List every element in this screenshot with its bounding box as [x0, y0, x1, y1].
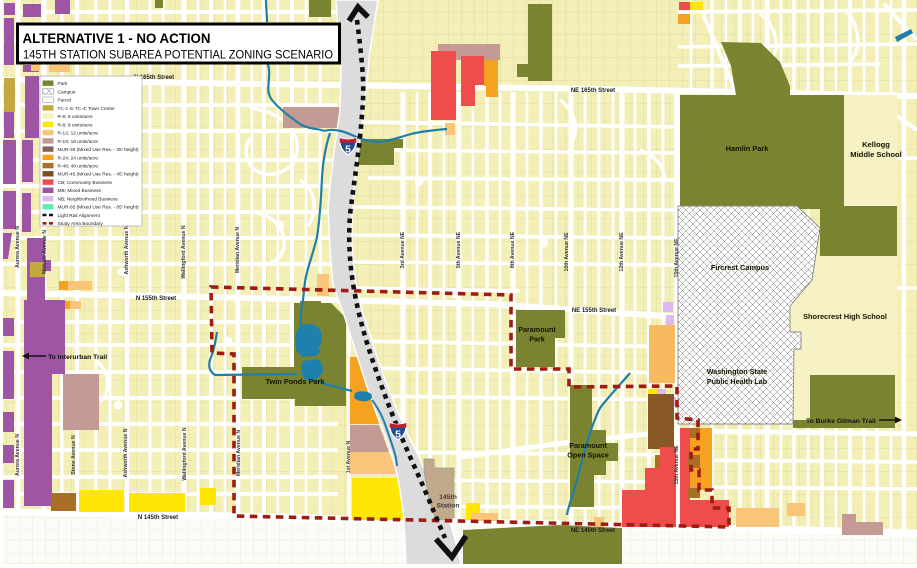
svg-text:MB; Mixed Business: MB; Mixed Business: [58, 188, 102, 194]
svg-text:145thStation: 145thStation: [436, 494, 459, 510]
svg-text:TC-1 to TC-4; Town Center: TC-1 to TC-4; Town Center: [58, 106, 116, 112]
svg-text:To Burke Gilman Trail: To Burke Gilman Trail: [806, 418, 876, 425]
svg-text:145TH STATION SUBAREA POTENTIA: 145TH STATION SUBAREA POTENTIAL ZONING S…: [23, 48, 333, 62]
svg-text:ALTERNATIVE 1 - NO ACTION: ALTERNATIVE 1 - NO ACTION: [23, 30, 211, 46]
svg-text:15th Avenue NE: 15th Avenue NE: [674, 238, 680, 278]
svg-text:CB; Community Business: CB; Community Business: [58, 180, 113, 186]
svg-text:Meridian Avenue N: Meridian Avenue N: [236, 430, 242, 477]
svg-text:10th Avenue NE: 10th Avenue NE: [564, 232, 570, 272]
svg-text:Twin Ponds Park: Twin Ponds Park: [266, 377, 326, 386]
svg-text:Campus: Campus: [58, 89, 76, 95]
svg-text:5: 5: [345, 144, 351, 156]
svg-text:MUR-45 (Mixed Use Res. - 45' h: MUR-45 (Mixed Use Res. - 45' height): [58, 172, 140, 178]
svg-text:Park: Park: [58, 81, 68, 87]
svg-text:NE 155th Street: NE 155th Street: [572, 308, 616, 314]
svg-text:R-6; 6 units/acre: R-6; 6 units/acre: [58, 114, 94, 120]
svg-text:ParamountOpen Space: ParamountOpen Space: [567, 441, 609, 460]
svg-text:Ashworth Avenue N: Ashworth Avenue N: [124, 225, 130, 274]
svg-text:Meridian Avenue N: Meridian Avenue N: [235, 227, 241, 274]
svg-text:12th Avenue NE: 12th Avenue NE: [619, 232, 625, 272]
svg-text:Wallingford Avenue N: Wallingford Avenue N: [181, 225, 187, 279]
svg-text:Midvale Avenue N: Midvale Avenue N: [42, 230, 48, 274]
svg-text:R-18; 18 units/acre: R-18; 18 units/acre: [58, 139, 99, 145]
svg-text:Hamlin Park: Hamlin Park: [726, 144, 770, 153]
svg-text:To Interurban Trail: To Interurban Trail: [48, 354, 107, 361]
svg-text:15th Avenue NE: 15th Avenue NE: [674, 445, 680, 485]
svg-text:N 145th Street: N 145th Street: [138, 515, 178, 521]
svg-text:5th Avenue NE: 5th Avenue NE: [456, 231, 462, 268]
svg-text:Light Rail Alignment: Light Rail Alignment: [58, 213, 101, 219]
svg-text:Aurora Avenue N: Aurora Avenue N: [15, 434, 21, 476]
svg-text:Study Area Boundary: Study Area Boundary: [58, 221, 104, 227]
svg-text:Aurora Avenue N: Aurora Avenue N: [15, 226, 21, 268]
svg-text:5: 5: [395, 429, 401, 441]
svg-text:Stone Avenue N: Stone Avenue N: [71, 435, 77, 475]
svg-text:3rd Avenue NE: 3rd Avenue NE: [400, 231, 406, 268]
svg-text:1st Avenue N: 1st Avenue N: [346, 441, 352, 474]
svg-text:Fircrest Campus: Fircrest Campus: [711, 263, 769, 272]
svg-text:R-12; 12 units/acre: R-12; 12 units/acre: [58, 131, 99, 137]
svg-text:Washington StatePublic Health: Washington StatePublic Health Lab: [707, 367, 768, 386]
svg-text:MUR-35 (Mixed Use Res. - 35' h: MUR-35 (Mixed Use Res. - 35' height): [58, 147, 140, 153]
svg-text:R-24; 24 units/acre: R-24; 24 units/acre: [58, 155, 99, 161]
svg-text:NE 145th Street: NE 145th Street: [571, 528, 615, 534]
svg-text:NB; Neighborhood Business: NB; Neighborhood Business: [58, 197, 119, 203]
svg-text:N 155th Street: N 155th Street: [136, 296, 176, 302]
svg-text:Ashworth Avenue N: Ashworth Avenue N: [123, 428, 129, 477]
svg-text:8th Avenue NE: 8th Avenue NE: [510, 231, 516, 268]
svg-text:Shorecrest High School: Shorecrest High School: [803, 312, 887, 321]
svg-text:R-8; 8 units/acre: R-8; 8 units/acre: [58, 122, 94, 128]
svg-text:R-48; 48 units/acre: R-48; 48 units/acre: [58, 164, 99, 170]
svg-text:NE 165th Street: NE 165th Street: [571, 88, 615, 94]
svg-text:Wallingford Avenue N: Wallingford Avenue N: [182, 427, 188, 481]
svg-text:MUR-85 (Mixed Use Res. - 85' h: MUR-85 (Mixed Use Res. - 85' height): [58, 205, 140, 211]
svg-text:Parcel: Parcel: [58, 98, 72, 104]
